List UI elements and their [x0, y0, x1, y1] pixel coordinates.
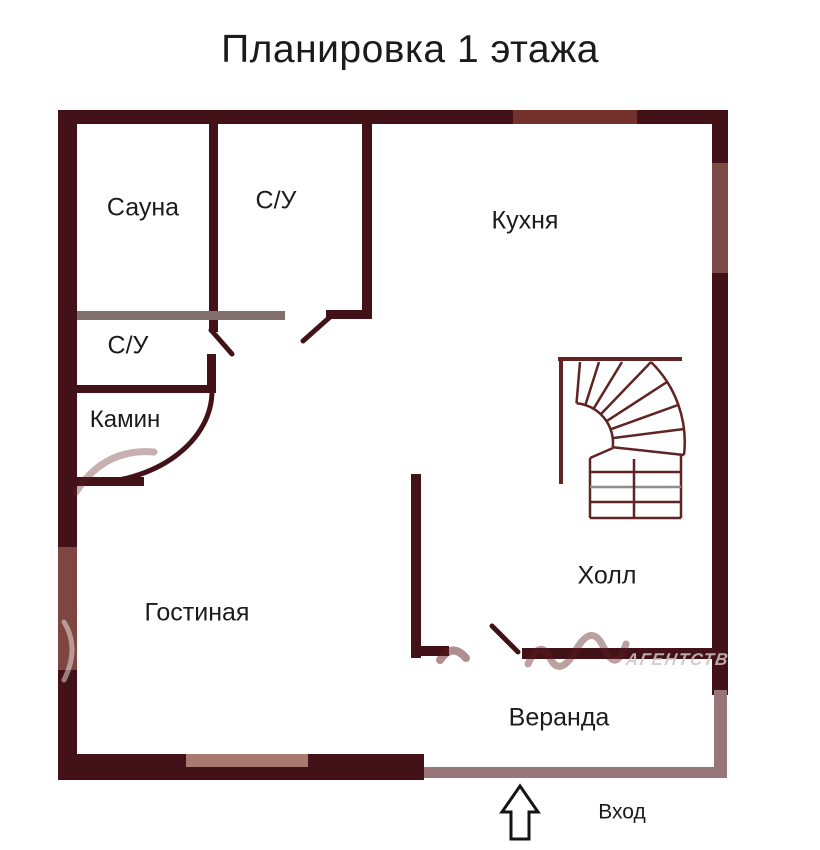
room-label-bathroom-top: С/У — [256, 189, 297, 214]
wall-stub-left-bathroom — [207, 354, 216, 393]
room-label-bathroom-left: С/У — [108, 334, 149, 359]
staircase — [558, 359, 685, 518]
door-kitchen — [303, 317, 330, 341]
watermark-strokes — [64, 452, 626, 680]
room-label-fireplace: Камин — [90, 408, 161, 432]
room-label-kitchen: Кухня — [492, 209, 559, 234]
wall-below-sauna — [77, 311, 285, 320]
window-top — [513, 110, 637, 124]
window-bottom — [186, 754, 308, 767]
window-right — [712, 163, 728, 273]
wall-bathroom-kitchen-divider — [362, 124, 372, 314]
entrance-label: Вход — [598, 802, 646, 823]
watermark-text: АГЕНТСТВ — [625, 650, 731, 670]
doors — [211, 317, 518, 652]
door-veranda — [492, 626, 518, 652]
room-label-living-room: Гостиная — [145, 601, 250, 626]
up-arrow-icon — [502, 786, 538, 839]
veranda-wall-bottom — [424, 767, 727, 778]
wall-below-left-bathroom — [77, 385, 215, 393]
fireplace-arc — [87, 391, 212, 483]
room-label-hall: Холл — [578, 564, 637, 589]
veranda-wall-right — [714, 690, 727, 778]
wall-stub-kitchen — [326, 310, 372, 319]
floor-plan-page: Планировка 1 этажа — [0, 0, 820, 850]
wall-living-hall-divider — [411, 474, 421, 658]
wall-left — [58, 110, 77, 780]
wall-sauna-bathroom-divider — [209, 124, 218, 332]
room-label-sauna: Сауна — [107, 196, 179, 221]
door-left-bathroom — [211, 330, 232, 354]
room-label-veranda: Веранда — [509, 706, 610, 731]
